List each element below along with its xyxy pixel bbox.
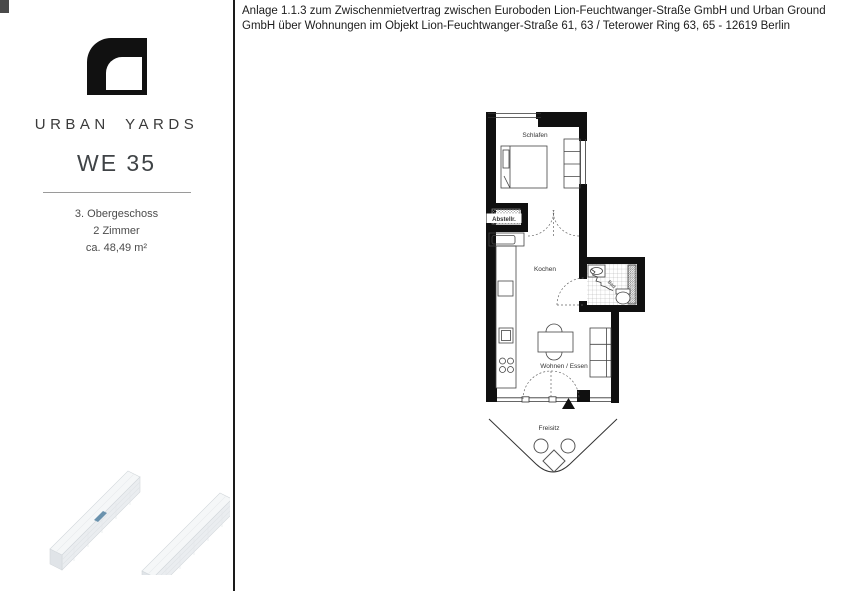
label-kitchen: Kochen: [534, 266, 556, 273]
label-terrace: Freisitz: [539, 425, 560, 432]
door-swings: [523, 210, 584, 399]
bed-symbol: [501, 146, 547, 188]
chair-bottom: [546, 352, 562, 360]
label-living: Wohnen / Essen: [540, 363, 588, 370]
stove-burners: [500, 358, 514, 373]
site-plan-buildings: [30, 445, 230, 575]
kitchen-cabinet: [498, 281, 513, 296]
kitchen-counter: [496, 246, 516, 388]
entrance-marker-triangle: [562, 398, 575, 409]
document-header: Anlage 1.1.3 zum Zwischenmietvertrag zwi…: [242, 4, 842, 33]
sidebar-divider: [43, 192, 191, 193]
sidebar: URBAN YARDS WE 35 3. Obergeschoss 2 Zimm…: [0, 0, 233, 591]
floorplan-sheet: URBAN YARDS WE 35 3. Obergeschoss 2 Zimm…: [0, 0, 860, 591]
unit-number: WE 35: [0, 150, 233, 177]
terrace-table: [543, 450, 565, 472]
chair-top: [546, 324, 562, 332]
terrace-chair-left: [534, 439, 548, 453]
rooms-detail: 2 Zimmer: [0, 223, 233, 240]
label-storage: Abstellr.: [492, 217, 516, 223]
pillow-symbol: [503, 150, 509, 168]
building-block-right: [142, 493, 230, 575]
urban-yards-logo-icon: [87, 38, 147, 95]
sofa-symbol: [590, 328, 611, 377]
toilet-symbol: [616, 292, 630, 304]
terrace-chair-right: [561, 439, 575, 453]
floor-detail: 3. Obergeschoss: [0, 206, 233, 223]
urban-yards-logo-cutout: [106, 57, 142, 90]
floor-plan: Schlafen Abstellr. Kochen Wohnen / Essen…: [440, 90, 700, 500]
label-bedroom: Schlafen: [522, 132, 548, 139]
wardrobe-symbol: [564, 139, 580, 188]
brand-name: URBAN YARDS: [0, 116, 233, 133]
sidebar-divider-line: [233, 0, 235, 591]
area-detail: ca. 48,49 m²: [0, 240, 233, 257]
dining-table: [538, 332, 573, 352]
